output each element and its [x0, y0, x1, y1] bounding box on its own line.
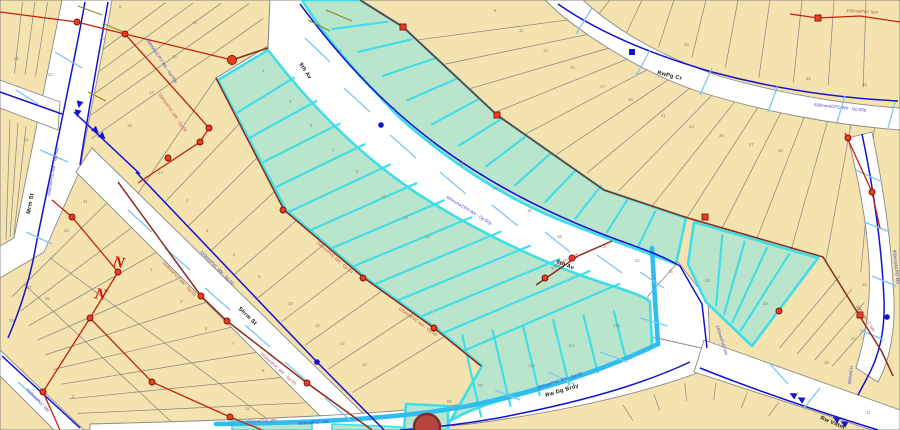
water-node-marker[interactable]	[280, 207, 286, 213]
parcel-number-label: 16	[362, 362, 367, 367]
parcel-number-label: 11	[24, 137, 29, 142]
parcel-number-label: 13	[403, 215, 408, 220]
parcel-number-label: 34	[862, 82, 867, 87]
water-node-marker[interactable]	[869, 189, 875, 195]
parcel-number-label: 24	[684, 42, 689, 47]
parcel-number-label: 27	[749, 142, 754, 147]
parcel-number-label: 16	[824, 360, 829, 365]
parcel-number-label: 14	[850, 336, 855, 341]
water-node-marker[interactable]	[224, 318, 230, 324]
water-node-marker[interactable]	[198, 293, 204, 299]
parcel-number-label: 12	[459, 161, 464, 166]
parcel-number-label: 112	[528, 363, 535, 368]
parcel-number-label: 28	[763, 301, 768, 306]
valve-marker[interactable]	[884, 314, 890, 320]
parcel-number-label: 10	[101, 36, 106, 41]
parcel-number-label: 32	[48, 72, 53, 77]
water-node-marker[interactable]	[542, 275, 548, 281]
parcel-number-label: 14	[492, 186, 497, 191]
water-node-marker[interactable]	[206, 125, 212, 131]
valve-marker[interactable]	[314, 359, 320, 365]
parcel-number-label: 21	[83, 199, 88, 204]
parcel-number-label: 22	[635, 258, 640, 263]
water-node-marker[interactable]	[227, 414, 233, 420]
parcel-number-label: 15	[570, 65, 575, 70]
parcel-number-label: 16	[527, 208, 532, 213]
parcel-number-label: 13	[192, 20, 197, 25]
parcel-number-label: 2A	[158, 170, 163, 175]
water-node-marker[interactable]	[228, 56, 237, 65]
parcel-number-label: 18	[557, 234, 562, 239]
parcel-number-label: 23	[64, 228, 69, 233]
water-node-marker[interactable]	[149, 379, 155, 385]
parcel-number-label: 26	[705, 278, 710, 283]
parcel-number-label: 30	[14, 56, 19, 61]
parcel-number-label: 98	[447, 399, 452, 404]
parcel-number-label: 14	[340, 341, 345, 346]
parcel-number-label: 114	[568, 343, 575, 348]
water-node-marker[interactable]	[776, 308, 782, 314]
water-node-marker[interactable]	[360, 275, 366, 281]
parcel-number-label: 11	[866, 410, 871, 415]
parcel-number-label: 29	[778, 148, 783, 153]
parcel-number-label: 26	[45, 296, 50, 301]
parcel-number-label: 116	[613, 323, 620, 328]
parcel-number-label: 15	[425, 234, 430, 239]
parcel-number-label: 12	[315, 323, 320, 328]
parcel-number-label: 17	[600, 84, 605, 89]
parcel-number-label: 27	[27, 285, 32, 290]
water-node-marker[interactable]	[40, 389, 46, 395]
water-node-marker[interactable]	[69, 214, 75, 220]
parcel-number-label: 24	[668, 269, 673, 274]
gis-map-viewport[interactable]: 303281013151719112123272628135791122A246…	[0, 0, 900, 430]
hydrant-marker[interactable]	[400, 24, 406, 30]
parcel-number-label: 11	[381, 194, 386, 199]
parcel-number-label: 23	[689, 124, 694, 129]
selected-feature-marker[interactable]	[414, 414, 440, 430]
parcel-number-label: 25	[719, 133, 724, 138]
valve-marker[interactable]	[629, 49, 635, 55]
parcel-number-label: 15	[172, 54, 177, 59]
parcel-number-label: 11	[245, 406, 250, 411]
water-node-marker[interactable]	[87, 315, 93, 321]
parcel-number-label: 32	[806, 76, 811, 81]
parcel-number-label: 20	[602, 244, 607, 249]
water-node-marker[interactable]	[197, 139, 203, 145]
parcel-number-label: 10	[428, 138, 433, 143]
water-node-marker[interactable]	[165, 155, 171, 161]
water-node-marker[interactable]	[304, 380, 310, 386]
parcel-number-label: 13	[543, 48, 548, 53]
hydrant-marker[interactable]	[702, 214, 708, 220]
gis-map-frame[interactable]: 303281013151719112123272628135791122A246…	[0, 0, 900, 430]
parcel-number-label: 10	[288, 301, 293, 306]
parcel-number-label: 11	[519, 28, 524, 33]
parcel-number-label: 19	[127, 123, 132, 128]
hydrant-marker[interactable]	[815, 15, 821, 21]
parcel-number-label: 21	[661, 113, 666, 118]
parcel-number-label: 10	[862, 282, 867, 287]
hydrant-marker[interactable]	[494, 112, 500, 118]
parcel-number-label: 28	[9, 318, 14, 323]
parcel-number-label: 17	[149, 90, 154, 95]
water-node-marker[interactable]	[122, 31, 128, 37]
water-node-marker[interactable]	[74, 19, 80, 25]
valve-marker[interactable]	[378, 122, 384, 128]
parcel-number-label: 78	[478, 383, 483, 388]
parcel-number-label: 19	[628, 97, 633, 102]
water-node-marker[interactable]	[845, 135, 851, 141]
